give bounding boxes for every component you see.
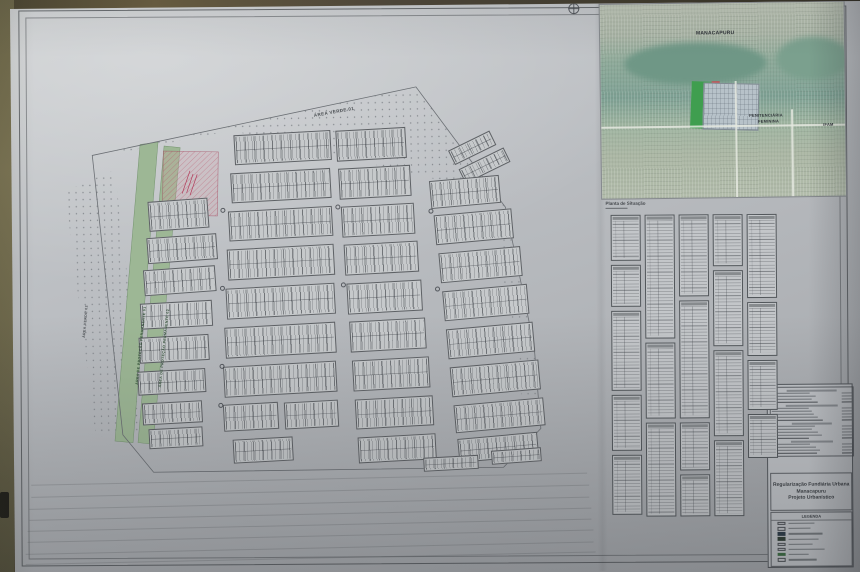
summary-value-bar: [842, 419, 852, 421]
water-body: [776, 36, 847, 80]
sheet-content: ÁREA VERDE 01ÁREA VERDE 02ÁREA DE PROTEÇ…: [0, 0, 860, 572]
legend-swatch: [777, 522, 785, 526]
quadra-block: [148, 426, 203, 449]
summary-value-bar: [842, 425, 852, 426]
photo-of-plan-sheet: ÁREA VERDE 01ÁREA VERDE 02ÁREA DE PROTEÇ…: [0, 0, 860, 572]
inset-caption: Planta de Situação: [605, 201, 645, 206]
legend-swatch: [778, 532, 786, 536]
water-body: [625, 41, 767, 86]
quadra-block: [142, 400, 203, 425]
summary-label-bar: [772, 419, 823, 421]
summary-value-bar: [842, 434, 852, 435]
summary-value-bar: [842, 413, 852, 414]
junction-marker: [220, 286, 225, 291]
wall-blotch: [0, 492, 9, 518]
lot-table: [645, 343, 675, 419]
lot-table: [612, 455, 642, 515]
quadra-block: [228, 206, 333, 242]
quadra-block: [233, 436, 294, 463]
summary-label-bar: [787, 389, 837, 391]
summary-value-bar: [842, 452, 852, 454]
road: [791, 109, 794, 196]
lot-table: [713, 270, 743, 346]
north-arrow-icon: [568, 3, 579, 14]
quadra-block: [230, 168, 331, 203]
lot-table: [645, 215, 676, 339]
summary-value-bar: [842, 431, 852, 432]
quadra-block: [284, 400, 339, 430]
title-box: Regularização Fundiária Urbana Manacapur…: [770, 472, 852, 511]
legend-swatch: [778, 548, 786, 552]
quadra-block: [140, 300, 213, 330]
summary-value-bar: [842, 407, 852, 408]
quadra-block: [147, 198, 209, 232]
quadra-block: [137, 368, 206, 396]
summary-value-bar: [842, 398, 852, 399]
legend-label-bar: [788, 528, 810, 529]
summary-value-bar: [842, 401, 852, 403]
summary-value-bar: [842, 449, 852, 450]
quadra-block: [335, 127, 407, 162]
junction-marker: [335, 204, 340, 209]
summary-label-bar: [785, 404, 838, 406]
lot-table: [713, 214, 743, 266]
quadra-block: [143, 265, 217, 296]
junction-marker: [218, 403, 223, 408]
plan-sheet: ÁREA VERDE 01ÁREA VERDE 02ÁREA DE PROTEÇ…: [0, 0, 860, 572]
summary-value-bar: [842, 443, 852, 444]
inset-label: FEMININA: [758, 118, 779, 123]
junction-marker: [219, 364, 224, 369]
legend-label-bar: [789, 538, 819, 539]
summary-value-bar: [842, 416, 852, 417]
quadra-block: [352, 356, 431, 391]
legend-swatch: [778, 537, 786, 541]
quadra-block: [355, 395, 435, 429]
legend-label-bar: [789, 559, 817, 560]
legend-label-bar: [788, 523, 814, 524]
legend-swatch: [778, 558, 786, 562]
satellite-inset: MANACAPURUPENITENCIÁRIAFEMININAIFAM: [599, 1, 848, 200]
quadra-block: [224, 322, 337, 359]
quadra-block: [225, 283, 336, 320]
summary-value-bar: [842, 410, 852, 411]
quadra-block: [341, 203, 416, 238]
title-block: Regularização Fundiária Urbana Manacapur…: [767, 383, 854, 568]
legend-label-bar: [789, 533, 823, 534]
summary-label-bar: [772, 401, 818, 403]
quadra-block: [223, 402, 279, 432]
main-plan: ÁREA VERDE 01ÁREA VERDE 02ÁREA DE PROTEÇ…: [51, 75, 619, 506]
project-lot-cluster: [703, 82, 760, 130]
legend-swatch: [777, 527, 785, 531]
quadra-block: [227, 244, 336, 281]
summary-value-bar: [842, 395, 852, 396]
quadra-block: [349, 317, 427, 352]
lot-table: [612, 395, 642, 451]
quadra-block: [233, 130, 332, 165]
lot-table: [747, 302, 777, 356]
legend-swatch: [778, 553, 786, 557]
junction-marker: [341, 282, 346, 287]
lot-table: [680, 422, 710, 470]
inset-label: PENITENCIÁRIA: [749, 112, 783, 117]
quadra-block: [146, 233, 218, 264]
summary-table: [770, 386, 854, 457]
title-line-3: Projeto Urbanístico: [788, 495, 834, 502]
junction-marker: [435, 286, 440, 291]
area-verde-right-wedge: [499, 207, 540, 430]
inset-scale-bar: [606, 208, 628, 209]
quadra-block: [223, 361, 338, 398]
lot-table: [611, 311, 641, 391]
summary-value-bar: [842, 392, 852, 393]
junction-marker: [220, 208, 225, 213]
inset-label: MANACAPURU: [696, 30, 734, 37]
quadra-block: [139, 334, 210, 364]
lot-table: [747, 214, 778, 298]
lot-table: [714, 440, 744, 516]
legend-item: [772, 557, 852, 563]
lot-table: [611, 215, 641, 261]
quadra-block: [346, 280, 423, 315]
summary-value-bar: [842, 428, 852, 429]
lot-table: [679, 214, 710, 296]
legend-label-bar: [789, 549, 825, 550]
lot-table: [611, 265, 641, 307]
quadra-block: [344, 241, 420, 276]
lot-table: [680, 474, 710, 516]
summary-row: [772, 451, 852, 454]
legend-label-bar: [789, 543, 813, 544]
junction-marker: [428, 209, 433, 214]
quadra-block: [338, 165, 412, 200]
summary-value-bar: [842, 446, 852, 447]
lot-table: [646, 423, 677, 517]
lot-table: [747, 360, 777, 410]
lot-table: [679, 300, 710, 418]
legend-label-bar: [789, 554, 809, 555]
summary-label-bar: [772, 452, 817, 454]
summary-label-bar: [791, 440, 833, 442]
summary-value-bar: [842, 437, 852, 439]
legend: LEGENDA: [770, 511, 852, 566]
summary-label-bar: [792, 422, 832, 424]
legend-swatch: [778, 542, 786, 546]
inset-label: IFAM: [823, 122, 833, 127]
lot-table: [713, 350, 744, 436]
lot-table: [748, 414, 778, 458]
